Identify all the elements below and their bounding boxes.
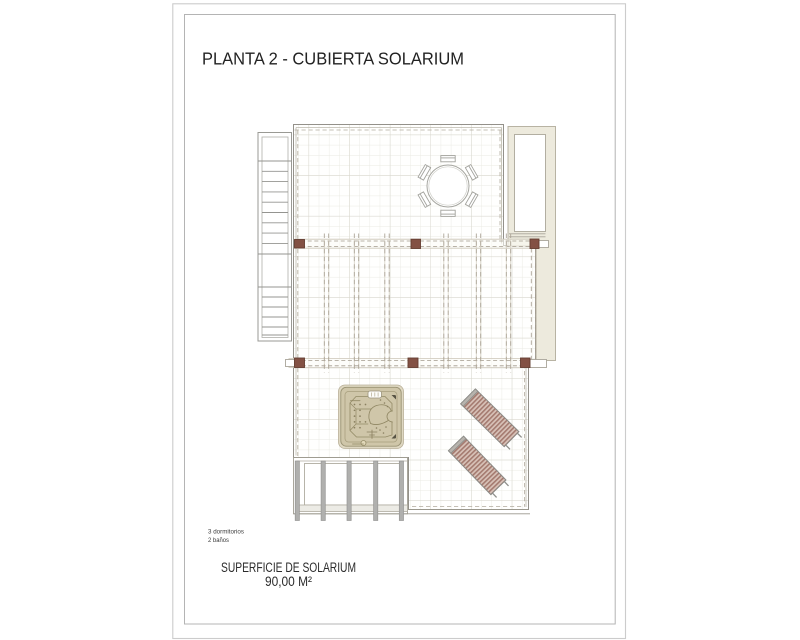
svg-text:3 dormitorios: 3 dormitorios (208, 529, 245, 536)
svg-text:90,00 M²: 90,00 M² (265, 574, 312, 589)
svg-text:2 baños: 2 baños (208, 537, 230, 544)
svg-text:PLANTA 2 - CUBIERTA SOLARIUM: PLANTA 2 - CUBIERTA SOLARIUM (202, 49, 464, 69)
svg-text:SUPERFICIE DE SOLARIUM: SUPERFICIE DE SOLARIUM (221, 560, 356, 575)
